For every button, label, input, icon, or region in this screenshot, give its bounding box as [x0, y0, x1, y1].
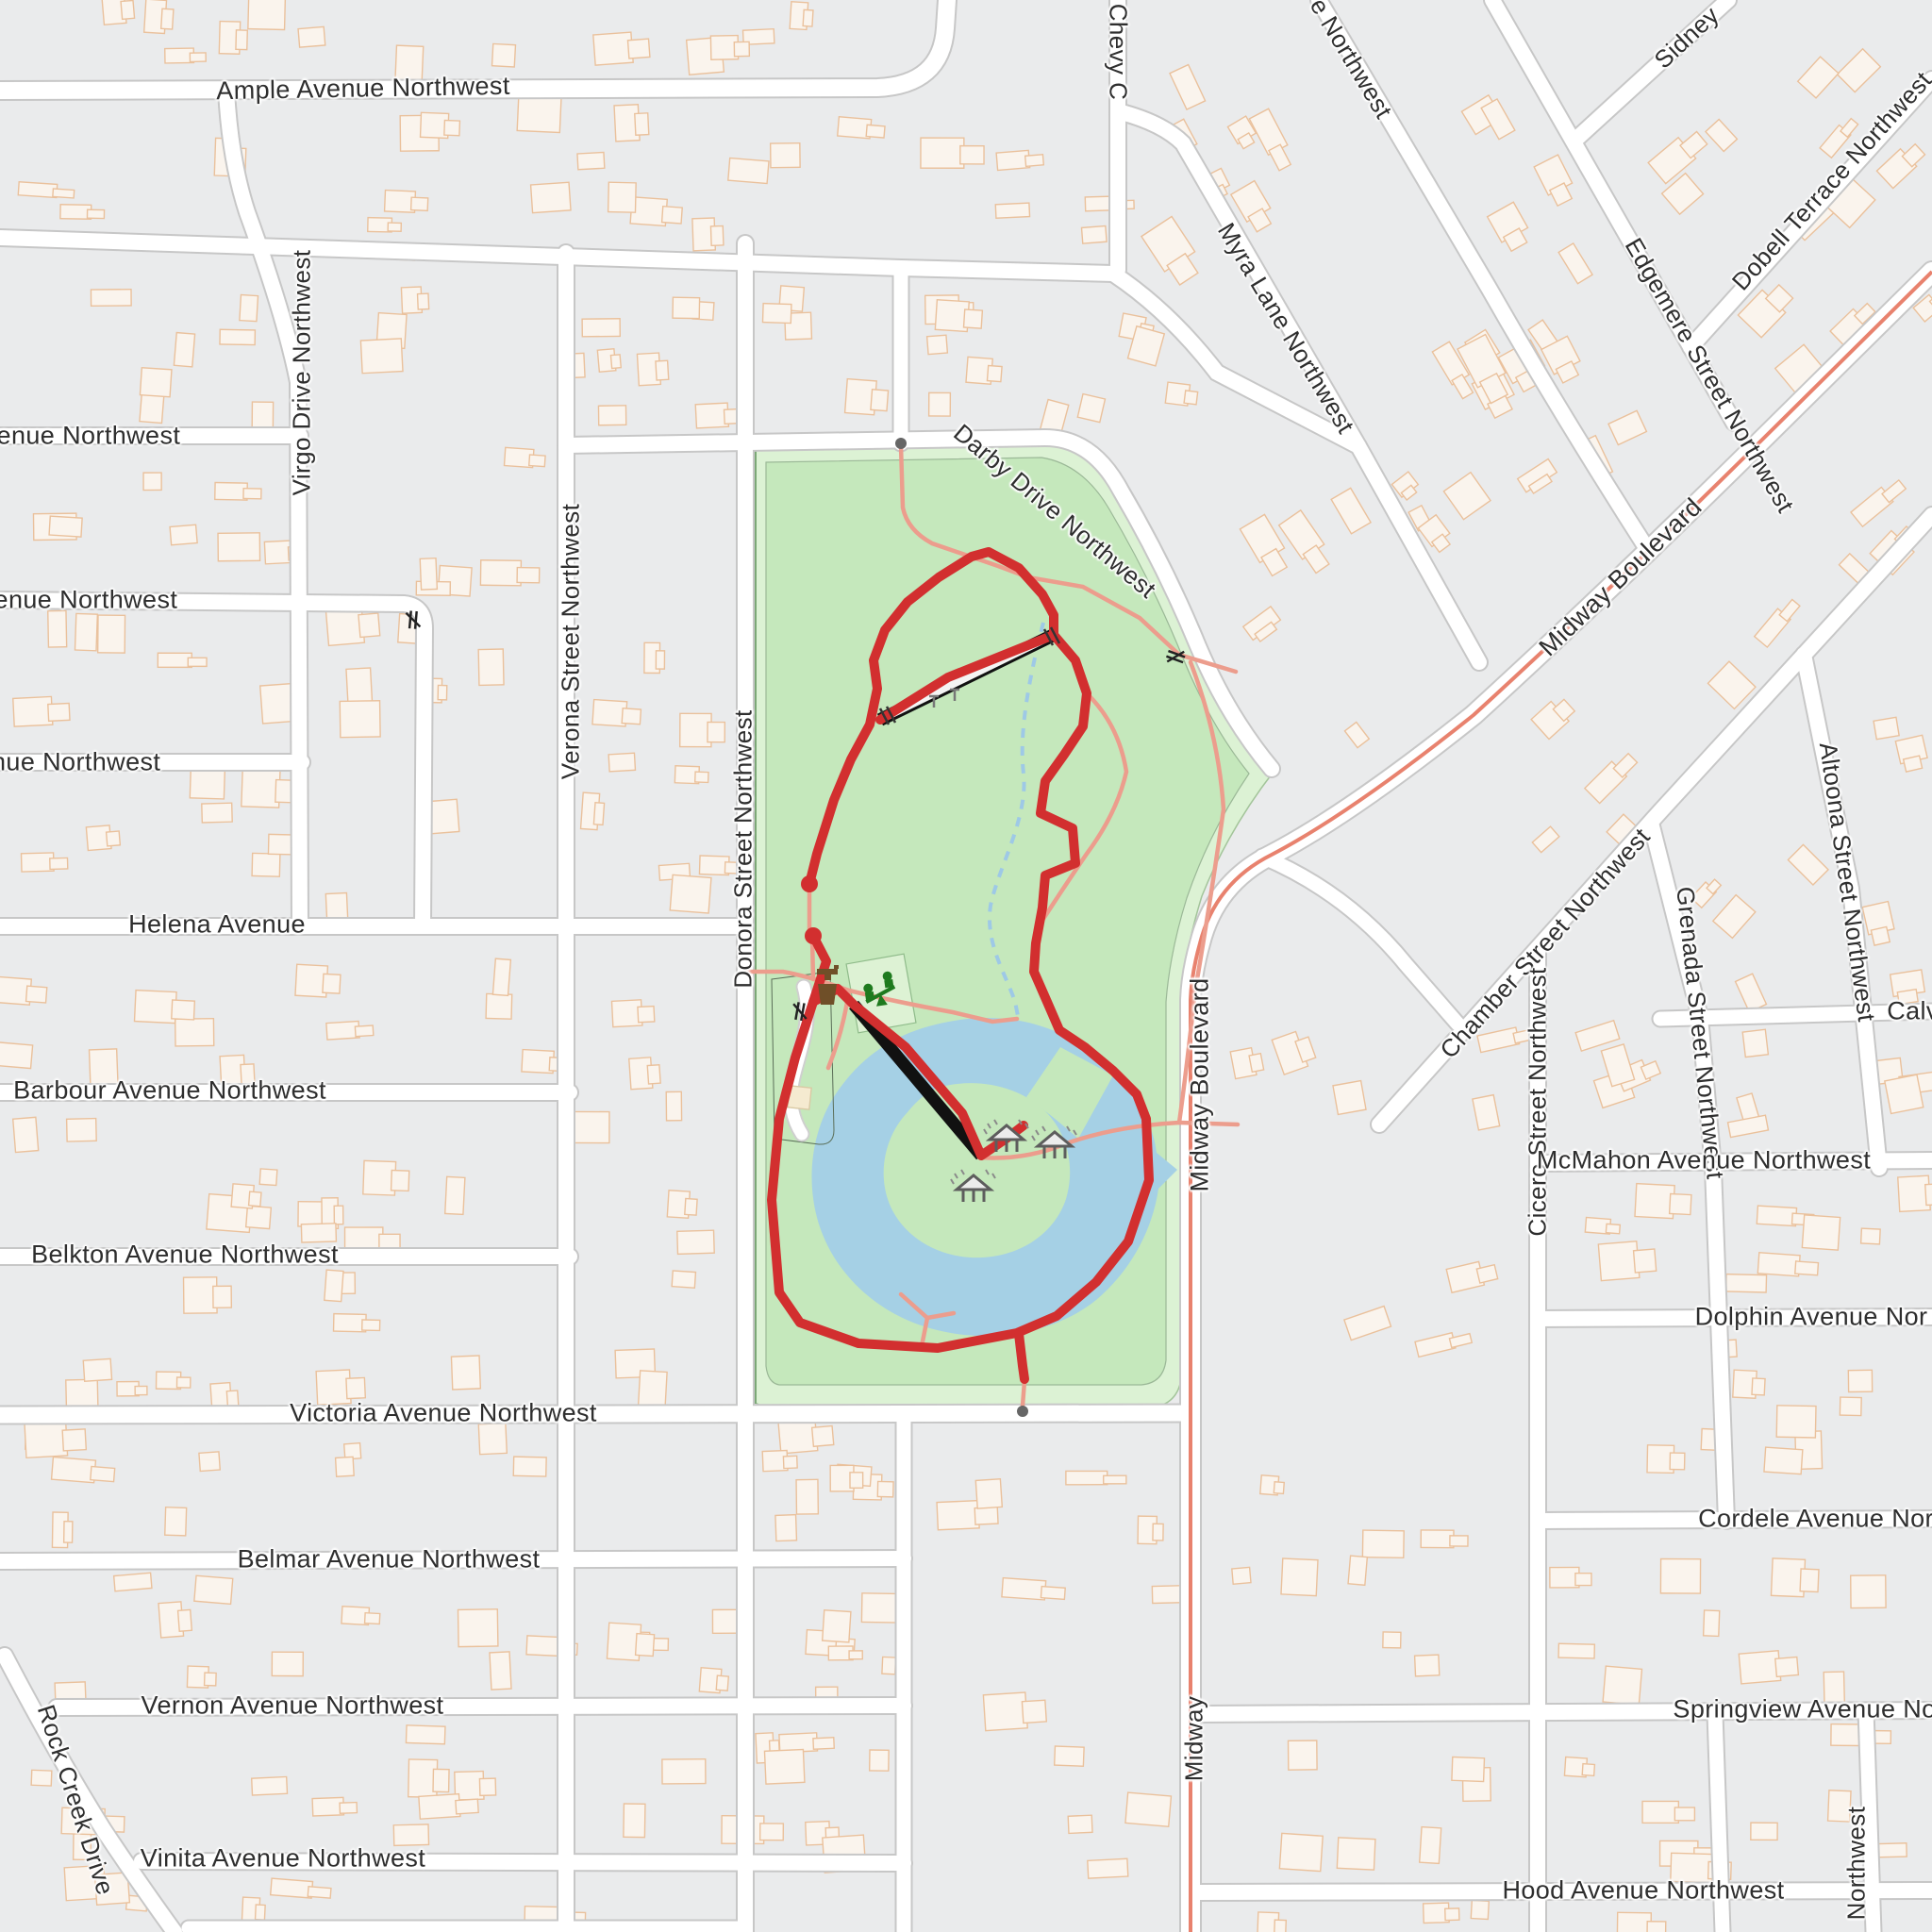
cordele-avenue — [1542, 1519, 1932, 1521]
building — [1726, 1274, 1767, 1292]
building — [531, 182, 571, 212]
building — [1742, 1029, 1768, 1057]
building — [771, 143, 800, 168]
vinita-avenue — [142, 1861, 904, 1863]
building — [712, 1609, 739, 1633]
building — [360, 339, 403, 374]
building — [670, 874, 711, 913]
building — [608, 753, 635, 772]
building — [301, 1224, 336, 1242]
building — [927, 335, 948, 354]
building — [478, 1424, 507, 1455]
building — [248, 0, 285, 29]
building — [140, 393, 164, 424]
building — [55, 1682, 86, 1701]
building — [406, 1725, 445, 1744]
route-road-node-dot — [1017, 1406, 1028, 1417]
building — [67, 1119, 97, 1141]
building — [1828, 1790, 1851, 1822]
building — [492, 43, 516, 67]
building — [486, 993, 512, 1019]
route-endpoint-dot — [805, 927, 822, 944]
building — [672, 1271, 695, 1288]
map-render-layer: ≠≠≠ — [0, 0, 1932, 1932]
building — [252, 402, 273, 429]
building — [140, 368, 172, 397]
building — [458, 1609, 497, 1647]
building — [1281, 1558, 1318, 1596]
park-footpath — [1023, 1381, 1024, 1406]
building — [666, 1091, 681, 1121]
building — [870, 1750, 889, 1771]
building — [252, 853, 280, 876]
building — [48, 610, 67, 647]
building — [31, 1770, 52, 1786]
gate-icon: ≠ — [395, 607, 430, 633]
building — [1333, 1081, 1366, 1115]
building — [638, 1371, 667, 1409]
belmar-avenue — [0, 1558, 904, 1561]
building — [114, 1573, 152, 1591]
gps-route-track — [1019, 1334, 1024, 1379]
building — [218, 533, 260, 561]
building — [1802, 1215, 1840, 1250]
building — [174, 333, 194, 367]
building — [1362, 1530, 1404, 1557]
springview-avenue — [1191, 1710, 1932, 1714]
route-road-node-dot — [895, 438, 907, 449]
building — [929, 392, 951, 416]
building — [170, 525, 197, 545]
building — [1068, 1815, 1092, 1833]
map-canvas[interactable]: ≠≠≠ Ample Avenue NorthwestAvenue Northwe… — [0, 0, 1932, 1932]
building — [1660, 1559, 1700, 1594]
building — [517, 95, 561, 133]
building — [91, 290, 131, 307]
building — [478, 649, 504, 685]
building — [13, 1117, 39, 1152]
building — [1851, 1575, 1886, 1608]
building — [395, 45, 424, 83]
building — [1751, 1823, 1777, 1840]
building — [1885, 1074, 1924, 1113]
building — [1288, 1740, 1317, 1770]
building — [429, 799, 459, 833]
park-footpath — [1179, 1123, 1238, 1124]
building — [775, 1515, 797, 1541]
calvert-avenue — [1660, 1011, 1932, 1019]
building — [662, 1759, 706, 1784]
dolphin-avenue — [1540, 1317, 1932, 1319]
hood-avenue — [1191, 1890, 1932, 1892]
building — [298, 26, 325, 47]
building — [577, 152, 605, 169]
building — [975, 1479, 1002, 1508]
building — [220, 329, 255, 344]
building — [1452, 1757, 1485, 1782]
building — [762, 304, 791, 324]
building — [336, 1457, 355, 1476]
building — [764, 1749, 804, 1784]
building — [1081, 225, 1107, 243]
building — [796, 1479, 818, 1514]
building — [199, 1452, 220, 1472]
mcmahon-avenue — [1538, 1160, 1932, 1163]
building — [420, 558, 437, 590]
building — [1704, 1610, 1720, 1636]
building — [1898, 1174, 1932, 1211]
building — [240, 295, 258, 322]
building — [1420, 1827, 1441, 1864]
building — [1874, 717, 1899, 739]
building — [1055, 1746, 1084, 1766]
building — [1824, 1672, 1844, 1707]
building — [608, 182, 637, 212]
northwest-street-south — [1866, 1710, 1874, 1932]
building — [1848, 1370, 1872, 1391]
building — [98, 615, 125, 653]
building — [490, 1652, 511, 1690]
building — [194, 1575, 233, 1604]
building — [1348, 1556, 1367, 1585]
building — [1415, 1655, 1440, 1676]
building — [175, 1019, 214, 1046]
building — [445, 1176, 465, 1214]
building — [572, 1111, 609, 1142]
building — [1776, 1406, 1816, 1438]
building — [1279, 1833, 1323, 1871]
building — [90, 1049, 119, 1087]
vernon-avenue — [57, 1706, 904, 1707]
grenada-south — [1715, 1714, 1723, 1932]
building — [598, 406, 625, 425]
building — [143, 473, 161, 490]
building — [823, 1610, 851, 1642]
building — [1383, 1632, 1401, 1648]
building — [260, 684, 294, 724]
building — [624, 1804, 645, 1838]
building — [259, 1169, 277, 1186]
building — [252, 1776, 288, 1795]
building — [1840, 1397, 1861, 1416]
building — [1764, 1447, 1803, 1474]
building — [728, 158, 769, 184]
building — [346, 668, 373, 706]
building — [340, 701, 380, 738]
building — [1077, 394, 1105, 423]
building — [0, 1041, 33, 1069]
building — [325, 892, 347, 920]
building — [513, 1457, 546, 1476]
building — [673, 297, 700, 318]
building — [83, 1358, 111, 1381]
building — [1088, 1858, 1128, 1878]
building — [1471, 1900, 1489, 1919]
victoria-avenue — [0, 1413, 1191, 1415]
building — [49, 516, 82, 537]
building — [75, 613, 97, 650]
building — [202, 803, 232, 823]
building — [492, 958, 510, 995]
building — [1125, 1792, 1172, 1826]
building — [272, 1652, 303, 1675]
building — [165, 1507, 187, 1536]
building — [451, 1356, 480, 1390]
route-endpoint-dot — [801, 875, 818, 892]
building — [1558, 1643, 1594, 1658]
building — [1232, 1567, 1251, 1584]
building — [325, 1270, 343, 1301]
building — [582, 319, 620, 337]
building — [995, 203, 1029, 218]
building — [677, 1230, 714, 1254]
building — [1861, 1228, 1881, 1244]
building — [1603, 1666, 1641, 1705]
building — [1337, 1838, 1375, 1870]
building — [393, 1824, 428, 1846]
